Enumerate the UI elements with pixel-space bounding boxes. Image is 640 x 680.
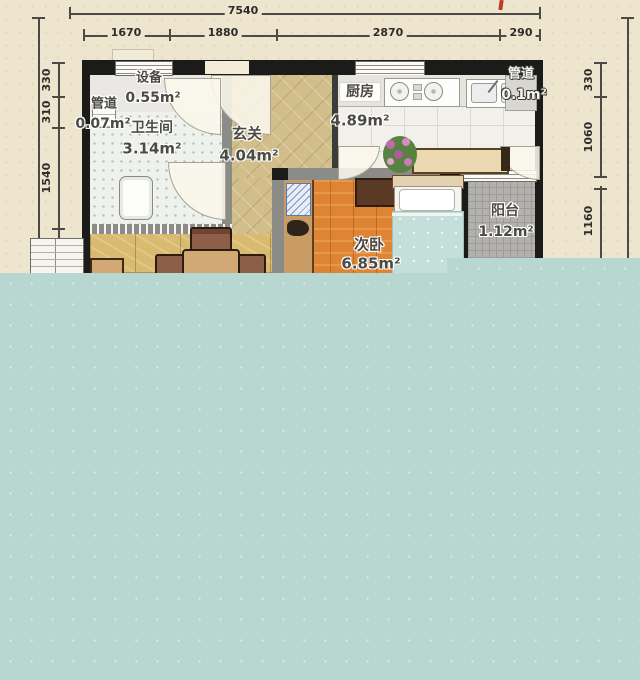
dim-tick xyxy=(52,96,65,98)
bedroom-area: 6.85m² xyxy=(341,257,400,272)
dim-tick xyxy=(276,29,278,41)
dim-left-seg-3: 1540 xyxy=(41,160,53,197)
bathroom-area: 3.14m² xyxy=(122,142,181,157)
pipe-left-label: 管道 xyxy=(91,98,117,111)
dim-top-seg-2: 1880 xyxy=(205,27,242,39)
bar-counter xyxy=(412,148,509,174)
pipe-right-label: 管道 xyxy=(508,68,534,81)
dim-tick xyxy=(499,29,501,41)
dim-left-seg-2: 310 xyxy=(41,98,53,127)
entry-door-opening xyxy=(205,61,249,74)
dim-left-seg-1: 330 xyxy=(41,66,53,95)
dim-tick xyxy=(539,29,541,41)
dim-tick xyxy=(32,17,45,19)
desk xyxy=(355,178,396,207)
bathtub xyxy=(119,176,153,220)
window-kitchen xyxy=(355,61,425,76)
bedroom-label: 次卧 xyxy=(354,238,384,253)
dim-tick xyxy=(594,188,607,190)
dim-right-seg-line xyxy=(600,186,602,262)
floor-plan-screenshot: 7540 1670 1880 2870 290 330 310 1540 330… xyxy=(0,0,640,680)
dim-tick xyxy=(52,127,65,129)
dim-top-seg-3: 2870 xyxy=(370,27,407,39)
plant-icon xyxy=(383,136,417,173)
kitchen-area: 4.89m² xyxy=(330,114,389,129)
pipe-right-area: 0.1m² xyxy=(501,88,547,102)
dim-right-seg-line xyxy=(600,62,602,178)
dim-right-seg-2: 1060 xyxy=(583,119,595,156)
balcony-label: 阳台 xyxy=(491,204,519,218)
bar-counter-end xyxy=(501,147,510,171)
dim-tick xyxy=(594,96,607,98)
dim-tick xyxy=(83,29,85,41)
dim-tick xyxy=(621,17,634,19)
compass-needle-tip xyxy=(498,0,503,10)
dim-tick xyxy=(539,7,541,19)
teal-overlay-right xyxy=(447,258,640,274)
dim-tick xyxy=(594,62,607,64)
bathroom-label: 卫生间 xyxy=(131,121,173,135)
balcony-area: 1.12m² xyxy=(478,225,533,239)
dim-top-total-line xyxy=(70,13,541,15)
stove-knob-icon xyxy=(413,93,422,100)
bay-window xyxy=(30,238,84,275)
dim-right-seg-3: 1160 xyxy=(583,203,595,240)
dim-tick xyxy=(52,62,65,64)
entry-label: 玄关 xyxy=(232,127,262,142)
corridor-wall xyxy=(272,180,284,273)
dim-tick xyxy=(52,228,65,230)
kitchen-label: 厨房 xyxy=(339,82,381,102)
bed-pillow xyxy=(399,189,455,211)
dim-top-seg-4: 290 xyxy=(507,27,536,39)
teal-overlay-main xyxy=(0,273,640,680)
dim-tick xyxy=(169,29,171,41)
bed-blanket-fold xyxy=(392,213,462,216)
dim-left-total-line xyxy=(38,18,40,273)
wardrobe-item-sketch xyxy=(286,183,311,216)
dim-right-total-line xyxy=(627,18,629,263)
balcony-floor xyxy=(468,180,535,258)
dim-top-seg-1: 1670 xyxy=(108,27,145,39)
dim-top-seg-line xyxy=(83,35,541,37)
wall-segment xyxy=(272,168,288,180)
stove-knob-icon xyxy=(413,84,422,91)
stove-burner-icon xyxy=(424,82,443,101)
dim-right-seg-1: 330 xyxy=(583,66,595,95)
equipment-area: 0.55m² xyxy=(125,91,180,105)
entry-area: 4.04m² xyxy=(219,149,278,164)
dim-top-total: 7540 xyxy=(225,5,262,17)
dim-tick xyxy=(594,176,607,178)
dim-tick xyxy=(69,7,71,19)
stove-burner-icon xyxy=(390,82,409,101)
equipment-label: 设备 xyxy=(136,72,162,85)
pipe-left-area: 0.07m² xyxy=(75,117,130,131)
wardrobe-dark-item xyxy=(287,220,309,236)
